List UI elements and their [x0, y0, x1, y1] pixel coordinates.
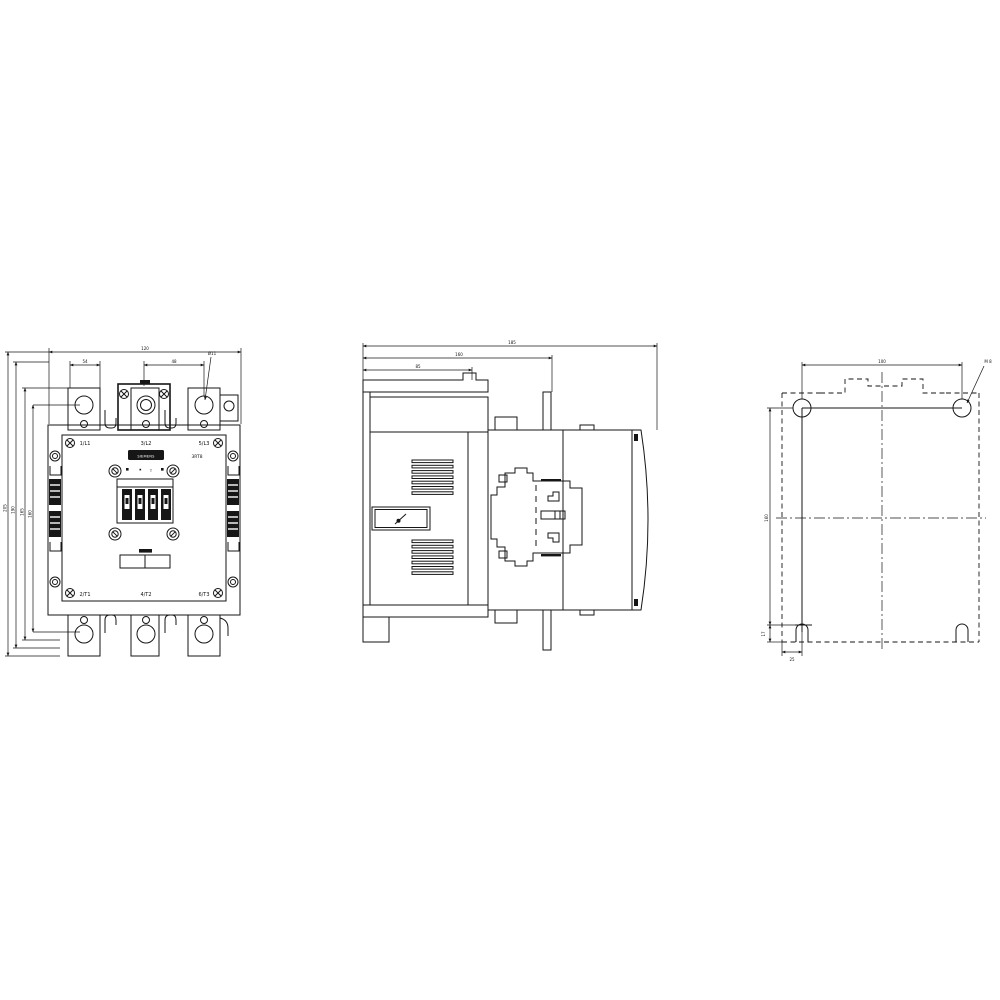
- mounting-pin-bottom: [543, 610, 551, 650]
- front-top-lugs: [68, 380, 238, 430]
- top-plate: [363, 373, 488, 392]
- side-rear-body: [563, 425, 648, 615]
- screw-icon: [167, 528, 179, 540]
- terminal-lug: [68, 615, 100, 656]
- side-dim-overall: 185: [508, 340, 516, 345]
- aux-terminal-strip-right: [227, 451, 239, 587]
- front-dim-overall-width: 120: [141, 346, 149, 351]
- side-front-housing: [363, 373, 488, 642]
- terminal-label-4T2: 4/T2: [140, 592, 151, 598]
- brand-logo-text: SIEMENS: [137, 454, 155, 458]
- screw-icon: [214, 439, 223, 448]
- terminal-label-5L3: 5/L3: [199, 441, 210, 447]
- back-plate: [632, 430, 648, 610]
- rating-mark: [139, 549, 152, 553]
- front-dim-lug-right: 48: [171, 359, 177, 364]
- terminal-label-6T3: 6/T3: [198, 592, 209, 598]
- screw-icon: [66, 439, 75, 448]
- cable-hook: [220, 618, 228, 636]
- center-lug-housing: [118, 384, 170, 430]
- side-mid-body: [488, 392, 563, 650]
- side-dim-front: 85: [415, 364, 421, 369]
- aux-block-hatch: [541, 479, 561, 556]
- screw-icon: [109, 465, 121, 477]
- mounting-dim-slot-depth: 17: [761, 631, 766, 637]
- coil-marking-dot: [140, 469, 142, 471]
- screw-icon: [160, 390, 169, 399]
- mounting-dimensions: 100 M 8 160 17 25: [761, 359, 992, 662]
- mounting-dim-hole-spacing: 100: [878, 359, 886, 364]
- side-dim-mid: 160: [455, 352, 463, 357]
- front-hole-callout: Ø11: [208, 351, 217, 356]
- mounting-outline: [782, 379, 979, 642]
- front-dim-height-holes: 160: [28, 510, 33, 518]
- mounting-hole-callout: M 8: [984, 359, 992, 364]
- cable-hook: [165, 615, 176, 633]
- mounting-view: 100 M 8 160 17 25: [750, 350, 1000, 680]
- vent-grille-upper: [412, 460, 453, 494]
- screw-icon: [109, 528, 121, 540]
- screw-icon: [120, 390, 129, 399]
- terminal-label-2T1: 2/T1: [79, 592, 90, 598]
- bottom-foot: [363, 605, 488, 617]
- inspection-window: [372, 507, 430, 530]
- screw-icon: [214, 589, 223, 598]
- centerlines: [776, 372, 986, 652]
- front-dim-height-outer: 205: [3, 504, 8, 512]
- terminal-lug: [188, 615, 220, 656]
- front-bottom-lugs: [68, 615, 228, 656]
- coil-terminal-block: [117, 479, 173, 523]
- drawing-canvas: 120 54 48 Ø11 205: [0, 0, 1000, 1000]
- screwdriver-icon: [395, 514, 406, 524]
- front-dim-lug-left: 54: [82, 359, 88, 364]
- terminal-label-1L1: 1/L1: [80, 441, 91, 447]
- mounting-pin-top: [543, 392, 551, 430]
- aux-terminal-strip-left: [49, 451, 61, 587]
- screw-icon: [66, 589, 75, 598]
- coil-marking-t: T: [149, 469, 153, 473]
- front-top-dimensions: 120 54 48 Ø11: [49, 346, 241, 424]
- mounting-dim-slot-offset: 25: [789, 657, 795, 662]
- side-view: 185 160 85: [355, 335, 665, 665]
- bottom-leg: [363, 617, 389, 642]
- front-view: 120 54 48 Ø11 205: [0, 338, 250, 668]
- coil-marking-dot: [161, 468, 164, 471]
- front-dim-height-3: 165: [20, 508, 25, 516]
- vent-grille-lower: [412, 540, 453, 574]
- mounting-slots: [795, 624, 968, 642]
- front-dim-height-2: 190: [11, 506, 16, 514]
- cable-hook: [105, 615, 116, 633]
- aux-switch-block: [491, 468, 582, 566]
- terminal-lug: [68, 388, 100, 430]
- type-code-label: 3RT8: [192, 454, 203, 460]
- front-band: [468, 432, 488, 605]
- mounting-dim-height: 160: [764, 514, 769, 522]
- screw-icon: [167, 465, 179, 477]
- front-body: 1/L1 3/L2 5/L3 2/T1 4/T2 6/T3 SIEMENS 3R…: [48, 425, 240, 615]
- coil-marking-dot: [126, 468, 129, 471]
- terminal-label-3L2: 3/L2: [141, 441, 152, 447]
